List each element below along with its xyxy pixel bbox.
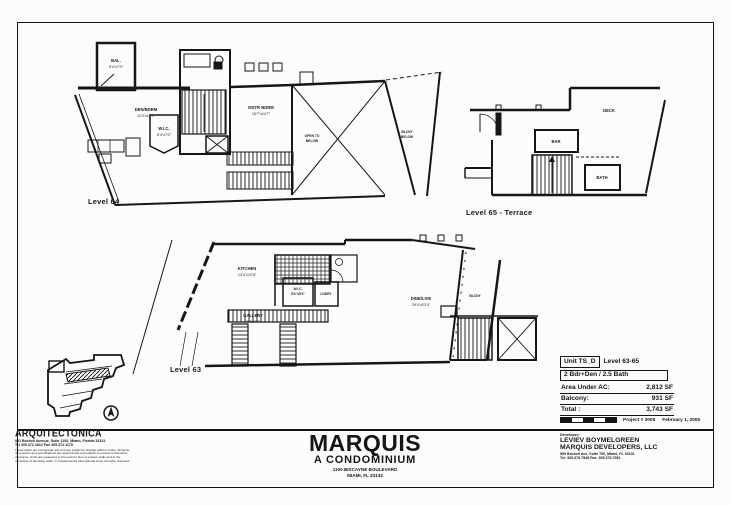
- room-dim-wic-63: 5'4"x5'4": [291, 292, 305, 296]
- walls-top-63: [214, 235, 475, 249]
- unit-info-label: Balcony:: [561, 396, 589, 403]
- architect-address: 801 Brickell Avenue, Suite 1100, Miami, …: [15, 439, 155, 443]
- project-subtitle: A CONDOMINIUM: [255, 455, 475, 467]
- developer-block: Developer: LEVIEV BOYMELGREEN MARQUIS DE…: [560, 433, 715, 460]
- floor-plan-level-64: BAL. 5'4"x7'0" DEN/BDRM 11'0"x12'0" W.I.…: [68, 34, 453, 214]
- room-dim-gallery: 7'4"x7'4": [246, 320, 261, 324]
- room-label-kitchen: KITCHEN: [238, 266, 257, 271]
- wall: [115, 196, 385, 205]
- room-label-balcony-63: BLCNY: [469, 294, 481, 298]
- label-open-to-below-1: OPEN TO: [305, 134, 320, 138]
- level-63-label: Level 63: [170, 365, 201, 374]
- terrace-stairs: [532, 155, 572, 195]
- elevator-shaft: [206, 136, 228, 153]
- room-label-laundry: LNDRY: [320, 292, 332, 296]
- room-label-wic-63: W.I.C.: [294, 287, 303, 291]
- room-label-gallery: GALLERY: [243, 313, 263, 318]
- fixtures-top-64: [214, 62, 313, 84]
- stairs-63: [180, 310, 328, 366]
- room-dim-wic-64: 6'4"x7'0": [157, 133, 172, 137]
- room-label-dine-live: DINE/LIVE: [411, 296, 432, 301]
- north-arrow-icon: [102, 404, 120, 422]
- room-label-bath: BATH: [596, 175, 607, 180]
- architect-name: ARQUITECTONICA: [15, 428, 155, 439]
- project-date: February 1, 2005: [662, 418, 700, 423]
- unit-info-row: Total : 3,743 SF: [560, 405, 674, 416]
- project-number: Project # 2005: [623, 418, 655, 423]
- room-dim-kitchen: 13'4"x10'6": [238, 273, 257, 277]
- unit-info-label: Area Under AC:: [561, 385, 610, 392]
- project-meta-row: Project # 2005 February 1, 2005: [560, 417, 707, 423]
- room-dim-dine-live: 29'4"x23'4": [412, 303, 431, 307]
- room-label-bal-64: BAL.: [111, 58, 121, 63]
- developer-name-2: MARQUIS DEVELOPERS, LLC: [560, 444, 715, 451]
- architect-disclaimer: These plans are conceptual only and are …: [15, 449, 155, 464]
- floor-plan-level-65: DECK BAR BATH Level 65 - Terrace: [452, 80, 667, 225]
- unit-info-value: 931 SF: [652, 396, 673, 403]
- balcony-edge-left-64: [75, 94, 119, 205]
- project-title: MARQUIS: [255, 433, 475, 455]
- label-balcony-below-2: BELOW: [401, 135, 414, 139]
- unit-info-value: 2,812 SF: [646, 385, 673, 392]
- balcony-edge-left-63: [133, 240, 214, 374]
- unit-info-row: Area Under AC: 2,812 SF: [560, 383, 674, 394]
- stair-runs-64: [227, 152, 293, 189]
- developer-address: 999 Brickell Ave, Suite 700, Miami, FL 3…: [560, 452, 715, 456]
- scale-bar: [560, 417, 617, 423]
- unit-level-range: Level 63-65: [604, 359, 640, 366]
- label-balcony-below-1: BLCNY: [401, 130, 413, 134]
- unit-config: 2 Bdr+Den / 2.5 Bath: [560, 370, 668, 382]
- service-elevators-63: [450, 316, 538, 360]
- room-label-deck: DECK: [603, 108, 615, 113]
- drawing-sheet: BAL. 5'4"x7'0" DEN/BDRM 11'0"x12'0" W.I.…: [0, 0, 731, 505]
- room-dim-bal-64: 5'4"x7'0": [109, 65, 124, 69]
- room-label-den-64: DEN/BDRM: [135, 107, 158, 112]
- architect-block: ARQUITECTONICA 801 Brickell Avenue, Suit…: [15, 428, 155, 464]
- room-label-bar: BAR: [551, 139, 560, 144]
- unit-info-value: 3,743 SF: [646, 407, 673, 414]
- room-dim-mstr-64: 15'7"x14'7": [252, 112, 271, 116]
- unit-info-row-header: Unit TS_D Level 63-65: [560, 356, 678, 368]
- balcony-edge-right-64: [385, 72, 442, 196]
- unit-info-row: Balcony: 931 SF: [560, 394, 674, 405]
- room-dim-den-64: 11'0"x12'0": [137, 114, 156, 118]
- unit-label: Unit TS_D: [560, 356, 600, 368]
- title-block: MARQUIS A CONDOMINIUM 1100 BISCAYNE BOUL…: [255, 433, 475, 479]
- room-label-mstr-64: MSTR BDRM: [248, 105, 274, 110]
- key-plan: [36, 346, 136, 424]
- level-64-label: Level 64: [88, 197, 120, 206]
- room-label-wic-64: W.I.C.: [158, 126, 169, 131]
- terrace-door: [480, 113, 501, 135]
- floor-plan-level-63: KITCHEN 13'4"x10'6" W.I.C. 5'4"x5'4" LND…: [128, 226, 548, 381]
- project-address: 1100 BISCAYNE BOULEVARD MIAMI, FL 33132: [255, 467, 475, 478]
- label-open-to-below-2: BELOW: [306, 139, 319, 143]
- unit-info-table: Unit TS_D Level 63-65 2 Bdr+Den / 2.5 Ba…: [560, 356, 678, 416]
- bath-core-63: [275, 255, 357, 306]
- architect-phone: Tel 305.372.1812 Fax 305.372.1175: [15, 443, 155, 447]
- open-to-below-x: [292, 81, 385, 195]
- level-65-label: Level 65 - Terrace: [466, 208, 532, 217]
- developer-phone: Tel: 305.379.7548 Fax: 305.379.7551: [560, 456, 715, 460]
- unit-info-label: Total :: [561, 407, 580, 414]
- developer-name-1: LEVIEV BOYMELGREEN: [560, 437, 715, 444]
